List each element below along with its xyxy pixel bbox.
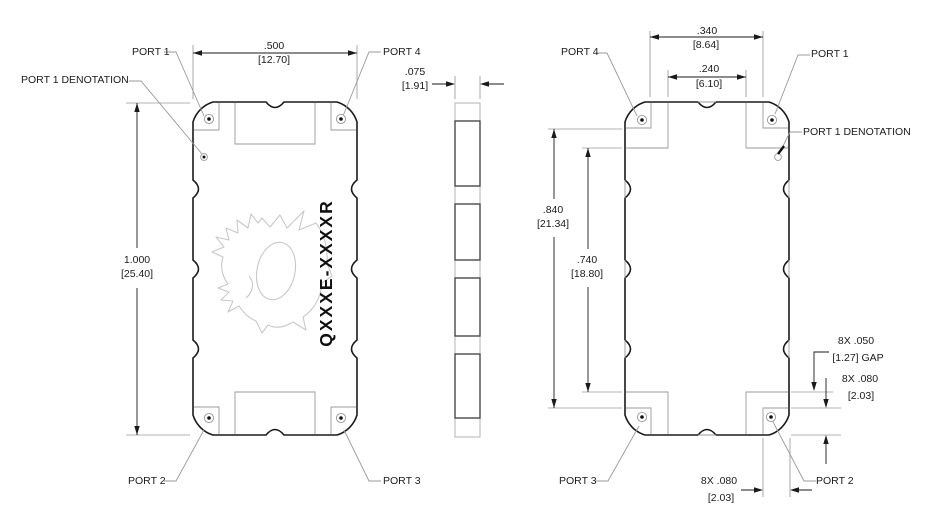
dim-pad-span-mm: [8.64]: [693, 39, 719, 51]
port2-label-top-view: PORT 2: [128, 475, 166, 487]
dimension-arrowheads: [134, 34, 828, 492]
side-view-castellation-segments: [455, 121, 480, 418]
dim-thickness-mm: [1.91]: [402, 80, 428, 92]
port1-label-bottom-view: PORT 1: [811, 48, 849, 60]
dim-height-mm: [25.40]: [119, 268, 155, 280]
dim-outer-height-mm: [21.34]: [535, 218, 571, 230]
dim-width-inch: .500: [264, 40, 284, 52]
dimension-lines: [137, 37, 829, 490]
mechanical-drawing-canvas: PORT 1 PORT 4 PORT 1 DENOTATION .500 [12…: [0, 0, 936, 530]
port3-label-bottom-view: PORT 3: [559, 475, 597, 487]
dim-thickness-inch: .075: [405, 66, 425, 78]
part-number: QXXXE-XXXXR: [316, 193, 334, 353]
port3-label-top-view: PORT 3: [383, 475, 421, 487]
side-view: [455, 103, 480, 437]
dim-inner-height-inch: .740: [575, 254, 599, 266]
port1-denotation-label-top-view: PORT 1 DENOTATION: [21, 74, 129, 86]
dim-height-inch: 1.000: [122, 254, 152, 266]
dim-gap-qty: 8X .050: [838, 335, 874, 347]
dim-pad-width-qty: 8X .080: [701, 475, 737, 487]
dragon-logo: [212, 211, 332, 333]
extension-lines: [126, 31, 841, 497]
dim-pad-height-mm: [2.03]: [848, 390, 874, 402]
port2-label-bottom-view: PORT 2: [816, 475, 854, 487]
dim-outer-height-inch: .840: [541, 204, 565, 216]
port1-denotation-label-bottom-view: PORT 1 DENOTATION: [803, 126, 911, 138]
side-view-substrate: [455, 103, 480, 437]
package-outlines: [193, 102, 789, 435]
port-pad-markers: [201, 114, 784, 422]
pad-boundaries: [194, 102, 789, 435]
port4-label-bottom-view: PORT 4: [561, 46, 599, 58]
dim-inner-span-mm: [6.10]: [696, 78, 722, 90]
dim-inner-height-mm: [18.80]: [569, 268, 605, 280]
dim-width-mm: [12.70]: [258, 54, 290, 66]
dim-pad-span-inch: .340: [697, 25, 717, 37]
leader-lines: [129, 52, 816, 481]
bottom-view-outline: [625, 102, 789, 435]
dim-pad-width-mm: [2.03]: [708, 492, 734, 504]
port4-label-top-view: PORT 4: [383, 46, 421, 58]
port1-denotation-tick: [778, 146, 784, 154]
dim-inner-span-inch: .240: [699, 63, 719, 75]
port1-label-top-view: PORT 1: [132, 46, 170, 58]
dim-pad-height-qty: 8X .080: [842, 373, 878, 385]
port1-denotation-via-bottom-view: [775, 154, 782, 161]
dim-gap-mm: [1.27] GAP: [832, 352, 883, 364]
